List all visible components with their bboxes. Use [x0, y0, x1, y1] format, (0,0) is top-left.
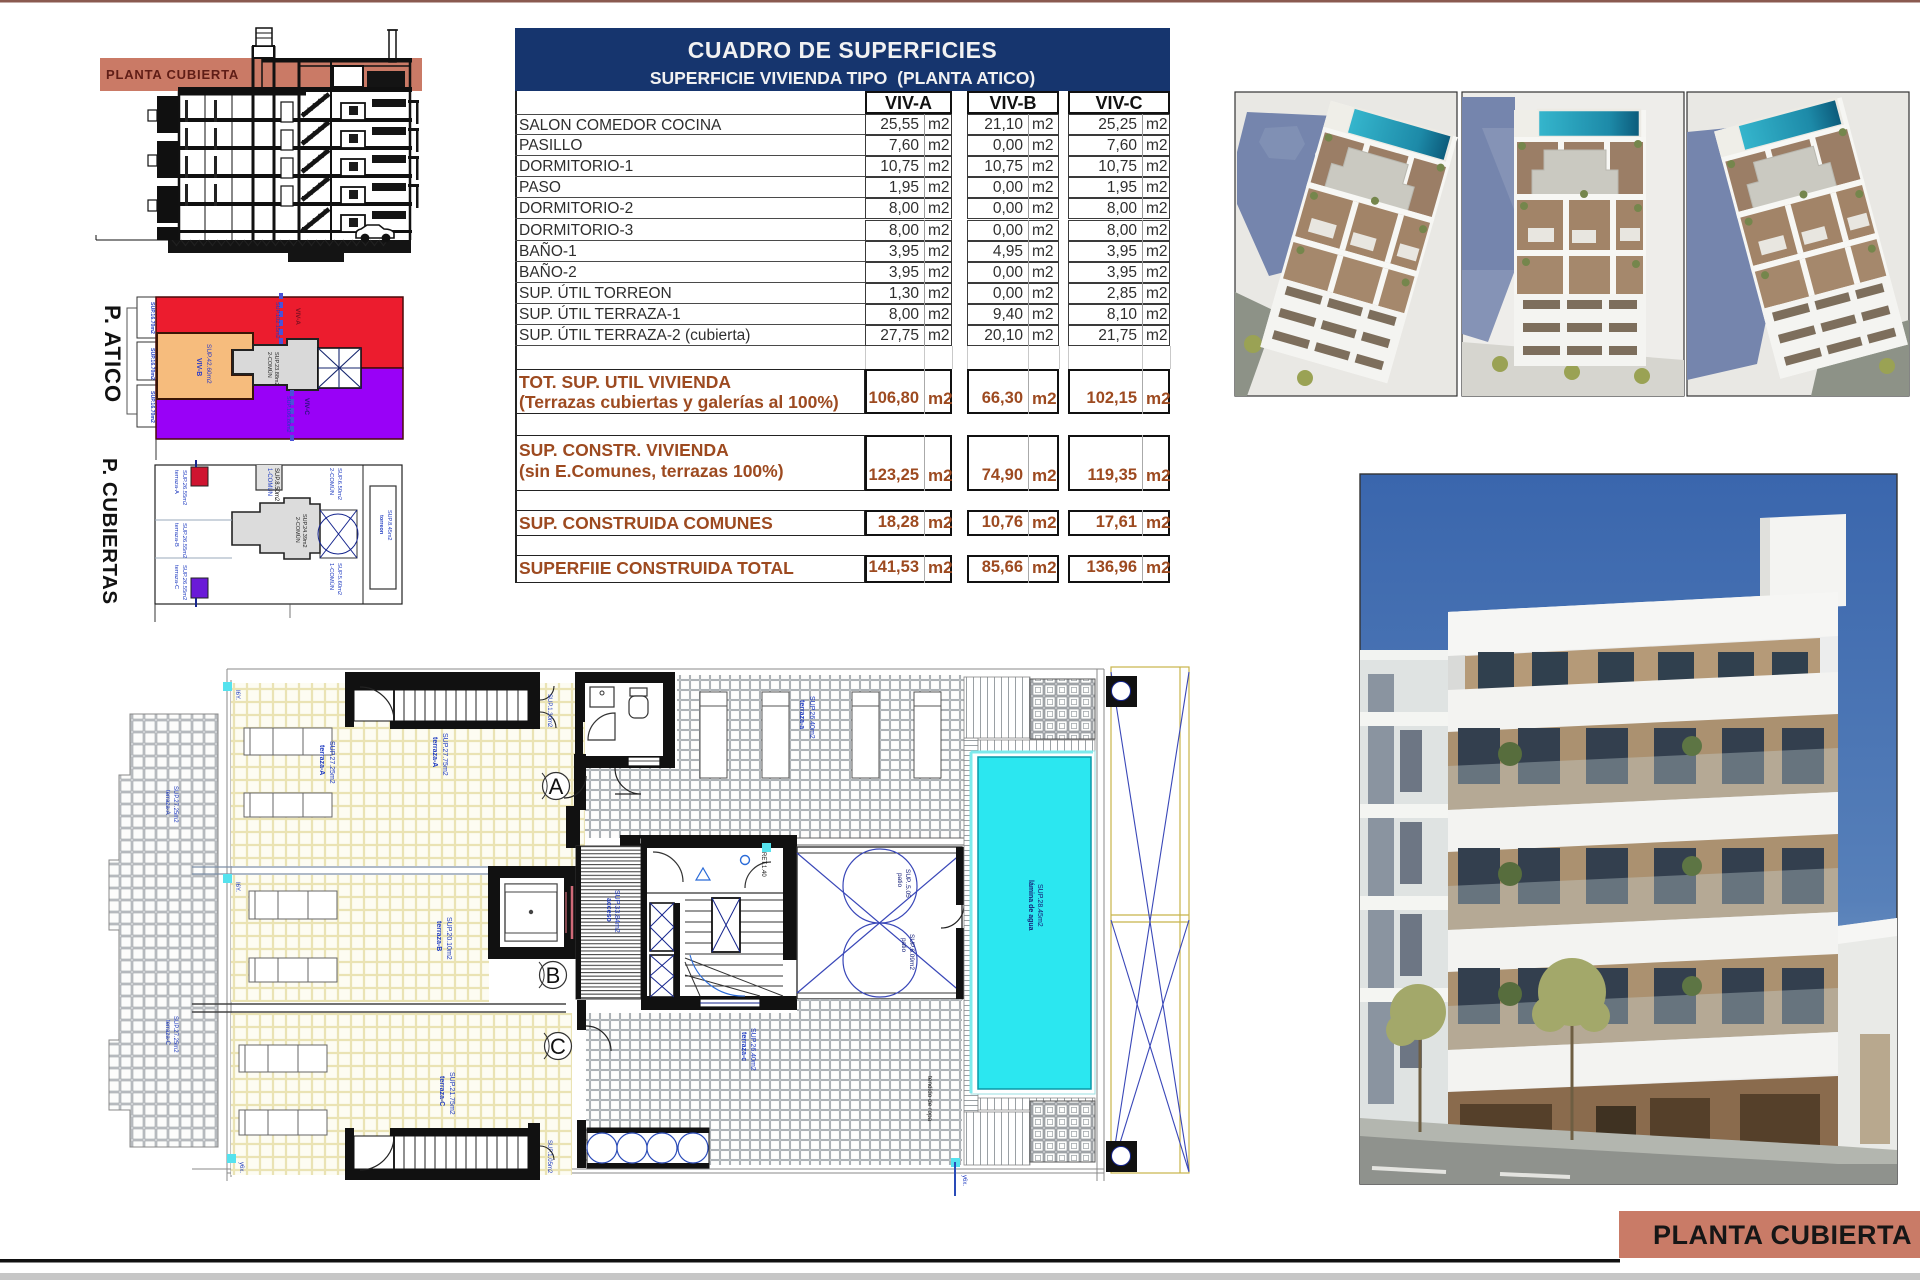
svg-text:SUP.23.88m2: SUP.23.88m2: [273, 352, 279, 386]
svg-text:SUP.1.05m2: SUP.1.05m2: [546, 1140, 552, 1174]
svg-text:terraza-A: terraza-A: [173, 470, 179, 494]
svg-text:SUP.8.45m2: SUP.8.45m2: [386, 510, 392, 540]
svg-text:terraza-c: terraza-c: [740, 1032, 747, 1061]
svg-text:SUP.33.84m2: SUP.33.84m2: [613, 890, 620, 933]
svg-text:SUP.21.75m2: SUP.21.75m2: [448, 1072, 455, 1115]
svg-text:patio: patio: [900, 938, 907, 952]
svg-text:SUP.42.60m2: SUP.42.60m2: [205, 344, 212, 384]
svg-text:SUP.16.70m2: SUP.16.70m2: [149, 391, 155, 423]
svg-text:I6Y.: I6Y.: [234, 690, 240, 700]
svg-text:RET.1.40: RET.1.40: [760, 852, 766, 877]
svg-text:SUP.26.40m2: SUP.26.40m2: [749, 1028, 756, 1071]
svg-text:SUP.16.70m2: SUP.16.70m2: [149, 302, 155, 334]
svg-text:VIV-A: VIV-A: [294, 308, 301, 325]
svg-text:VIV-C: VIV-C: [303, 398, 310, 415]
svg-text:SUP.27.25m2: SUP.27.25m2: [172, 1016, 178, 1053]
svg-text:terraza-A: terraza-A: [318, 745, 325, 775]
svg-text:SUP.27.25m2: SUP.27.25m2: [172, 786, 178, 823]
svg-text:terraza-a: terraza-a: [798, 700, 805, 729]
svg-text:terraza-A: terraza-A: [431, 737, 438, 767]
svg-text:terraza-C: terraza-C: [173, 565, 179, 589]
svg-text:2-COMÚN: 2-COMÚN: [266, 352, 273, 378]
svg-text:SUP.20.10m2: SUP.20.10m2: [445, 917, 452, 960]
svg-text:y6x.: y6x.: [238, 1162, 244, 1173]
svg-text:PLANTA CUBIERTA: PLANTA CUBIERTA: [106, 67, 239, 82]
svg-text:P. ATICO: P. ATICO: [100, 305, 125, 403]
svg-text:1-COMÚN: 1-COMÚN: [266, 468, 273, 496]
svg-text:terraza-A: terraza-A: [164, 790, 170, 815]
svg-text:SUP.8.50m2: SUP.8.50m2: [273, 468, 279, 502]
svg-text:C: C: [550, 1034, 566, 1059]
svg-text:terraza-C: terraza-C: [164, 1020, 170, 1046]
svg-text:patio: patio: [896, 873, 903, 887]
svg-text:SUP.28.45m2: SUP.28.45m2: [1036, 884, 1043, 927]
svg-text:SUP.26.40m2: SUP.26.40m2: [808, 696, 815, 739]
svg-text:SUP.24.39m2: SUP.24.39m2: [301, 514, 307, 548]
svg-text:SUP.26.55m2: SUP.26.55m2: [181, 523, 187, 558]
svg-text:SUP.6.09m2: SUP.6.09m2: [908, 934, 915, 970]
svg-text:SUP.26.55m2: SUP.26.55m2: [181, 470, 187, 505]
svg-text:A: A: [549, 774, 564, 799]
svg-text:lámina de agua: lámina de agua: [1027, 880, 1034, 931]
svg-text:SUP.27.25m2: SUP.27.25m2: [328, 741, 335, 784]
svg-text:I6Y.: I6Y.: [234, 882, 240, 892]
svg-text:SUP..5.05: SUP..5.05: [904, 869, 911, 898]
svg-text:SUP.26.55m2: SUP.26.55m2: [181, 565, 187, 600]
svg-text:terraza-C: terraza-C: [438, 1076, 445, 1106]
svg-text:VIV-B: VIV-B: [195, 358, 202, 376]
svg-text:terraza-B: terraza-B: [435, 921, 442, 951]
svg-text:P. CUBIERTAS: P. CUBIERTAS: [98, 458, 121, 605]
svg-text:SUP.16.70m2: SUP.16.70m2: [149, 348, 155, 380]
svg-text:SUP.27.75m2: SUP.27.75m2: [441, 733, 448, 776]
svg-text:1-COMÚN: 1-COMÚN: [328, 563, 335, 590]
svg-text:acceso: acceso: [605, 898, 612, 922]
svg-text:y6x.: y6x.: [961, 1175, 967, 1186]
svg-text:SUP.106.80m2: SUP.106.80m2: [285, 396, 291, 433]
svg-text:SUP.5.60m2: SUP.5.60m2: [336, 563, 342, 595]
svg-text:torreon: torreon: [378, 515, 384, 535]
svg-text:2-COMÚN: 2-COMÚN: [328, 468, 335, 495]
svg-text:SUP.1.30m2: SUP.1.30m2: [546, 694, 552, 728]
svg-text:SUP.102.15m2: SUP.102.15m2: [274, 302, 280, 339]
svg-text:terraza-B: terraza-B: [173, 523, 179, 547]
svg-text:2-COMÚN: 2-COMÚN: [294, 517, 301, 543]
svg-text:SUP.6.50m2: SUP.6.50m2: [336, 468, 342, 500]
svg-text:tendido de ropa: tendido de ropa: [926, 1076, 933, 1122]
svg-text:B: B: [546, 963, 561, 988]
